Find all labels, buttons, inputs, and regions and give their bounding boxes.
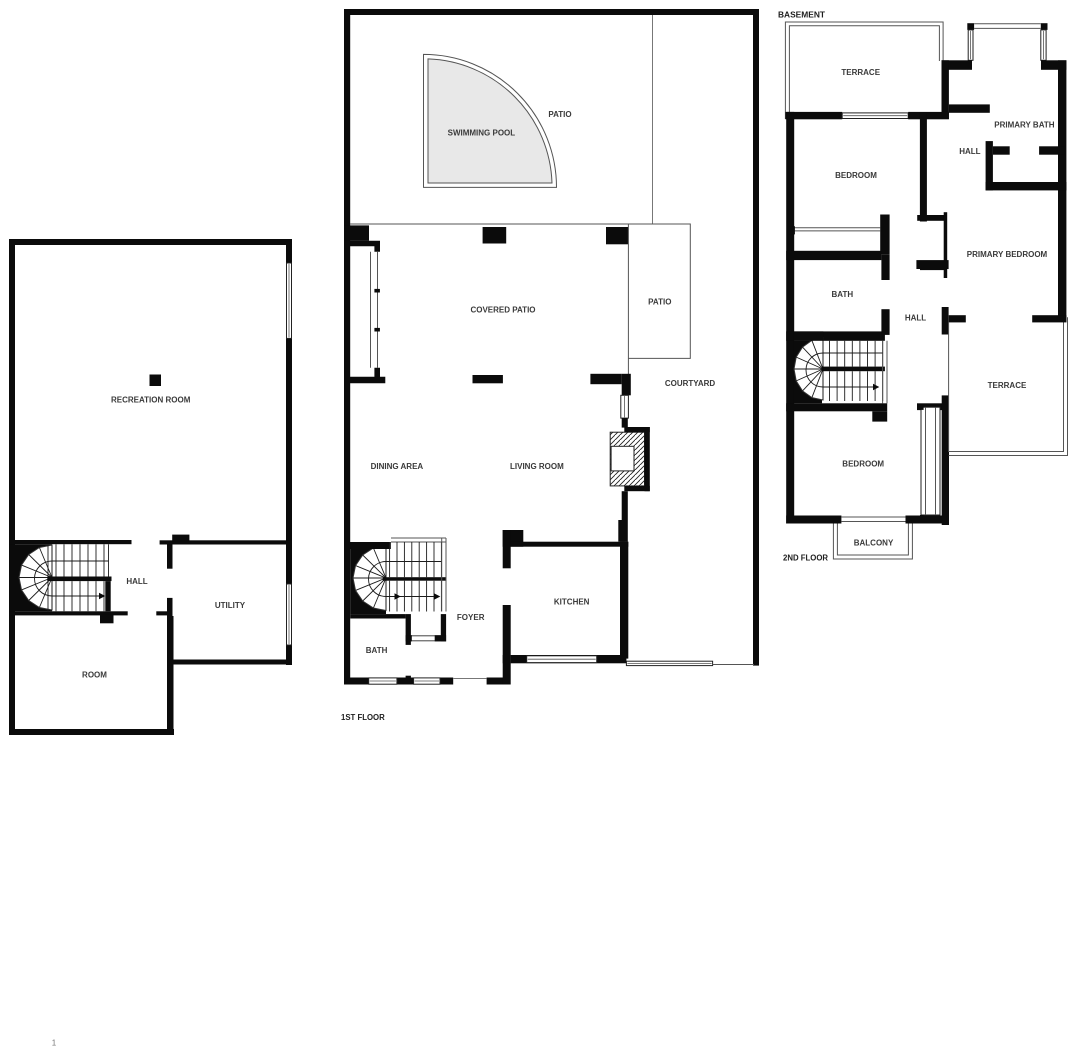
svg-text:1ST FLOOR: 1ST FLOOR (341, 713, 385, 722)
svg-text:HALL: HALL (959, 147, 980, 156)
svg-text:1: 1 (52, 1039, 57, 1048)
svg-text:BALCONY: BALCONY (854, 539, 894, 548)
svg-text:KITCHEN: KITCHEN (554, 598, 590, 607)
svg-text:PRIMARY BATH: PRIMARY BATH (994, 120, 1055, 129)
svg-text:ROOM: ROOM (82, 671, 107, 680)
svg-text:BATH: BATH (366, 646, 388, 655)
svg-text:BEDROOM: BEDROOM (842, 460, 884, 469)
svg-text:COVERED PATIO: COVERED PATIO (470, 306, 535, 315)
svg-text:COURTYARD: COURTYARD (665, 379, 716, 388)
svg-text:PATIO: PATIO (648, 297, 671, 306)
svg-text:DINING AREA: DINING AREA (371, 462, 424, 471)
svg-text:HALL: HALL (905, 314, 926, 323)
svg-text:PATIO: PATIO (548, 110, 571, 119)
svg-text:TERRACE: TERRACE (841, 68, 880, 77)
svg-text:FOYER: FOYER (457, 613, 485, 622)
svg-text:SWIMMING POOL: SWIMMING POOL (448, 128, 516, 137)
svg-text:RECREATION ROOM: RECREATION ROOM (111, 396, 191, 405)
svg-text:TERRACE: TERRACE (988, 381, 1027, 390)
svg-text:2ND FLOOR: 2ND FLOOR (783, 554, 828, 563)
svg-text:UTILITY: UTILITY (215, 601, 246, 610)
svg-text:BATH: BATH (831, 290, 853, 299)
svg-text:PRIMARY BEDROOM: PRIMARY BEDROOM (967, 250, 1048, 259)
svg-text:LIVING ROOM: LIVING ROOM (510, 462, 564, 471)
svg-text:BEDROOM: BEDROOM (835, 171, 877, 180)
svg-text:BASEMENT: BASEMENT (778, 10, 826, 20)
svg-text:HALL: HALL (126, 577, 147, 586)
